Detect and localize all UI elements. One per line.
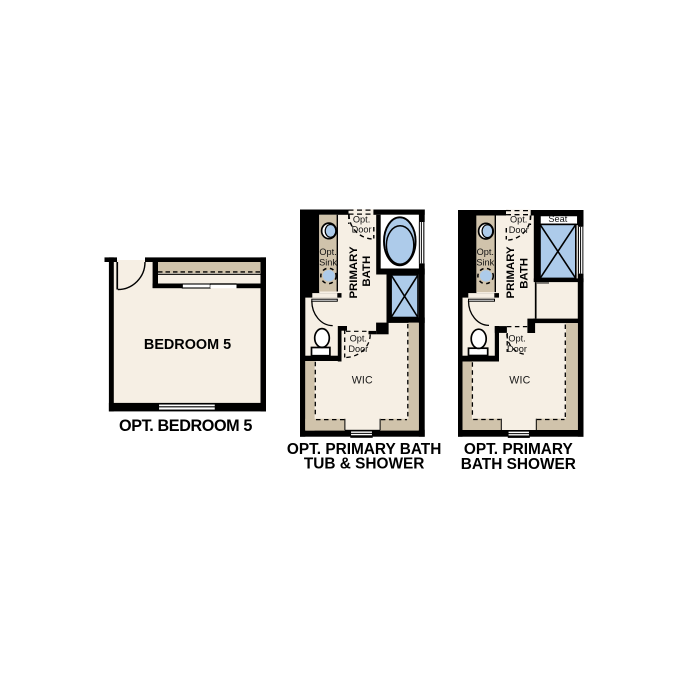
svg-text:BATH: BATH	[519, 258, 531, 289]
svg-text:BEDROOM 5: BEDROOM 5	[144, 337, 231, 353]
svg-text:Door: Door	[507, 344, 527, 354]
svg-text:BATH SHOWER: BATH SHOWER	[461, 456, 576, 473]
svg-text:Opt.: Opt.	[353, 214, 370, 224]
svg-text:Door: Door	[352, 225, 372, 235]
svg-text:Seat: Seat	[548, 214, 567, 224]
svg-text:Sink: Sink	[476, 258, 494, 268]
svg-text:TUB & SHOWER: TUB & SHOWER	[304, 456, 425, 473]
svg-text:BATH: BATH	[361, 256, 373, 287]
svg-text:Opt.: Opt.	[508, 333, 525, 343]
svg-text:Sink: Sink	[319, 258, 337, 268]
svg-text:OPT. BEDROOM 5: OPT. BEDROOM 5	[119, 417, 252, 435]
svg-text:PRIMARY: PRIMARY	[505, 246, 517, 299]
svg-text:Door: Door	[509, 225, 529, 235]
svg-text:PRIMARY: PRIMARY	[348, 246, 360, 299]
svg-text:Opt.: Opt.	[510, 215, 527, 225]
svg-text:Opt.: Opt.	[319, 247, 336, 257]
svg-text:WIC: WIC	[352, 375, 373, 387]
svg-text:Opt.: Opt.	[477, 247, 494, 257]
svg-text:Door: Door	[348, 344, 368, 354]
svg-text:Opt.: Opt.	[350, 333, 367, 343]
svg-text:WIC: WIC	[509, 375, 530, 387]
